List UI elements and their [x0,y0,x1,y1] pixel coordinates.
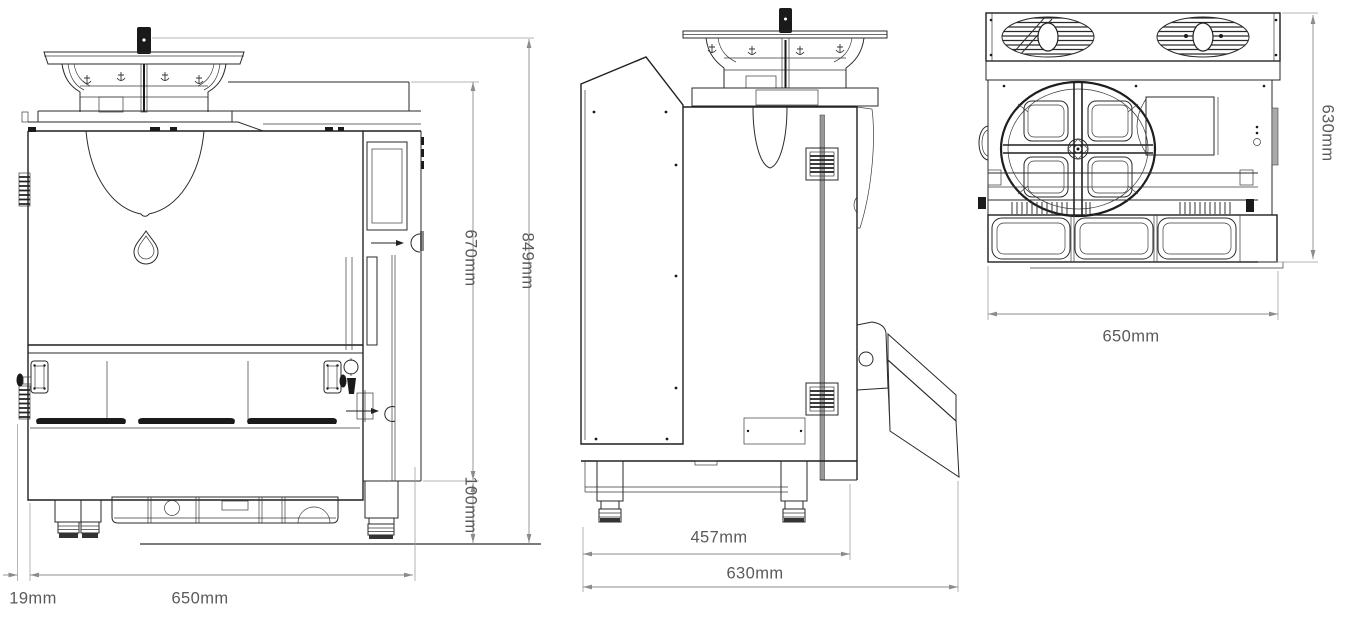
dim-front-leg-height-label: 100mm [461,476,480,533]
dough-tray-lips [30,418,360,428]
anchor-icon [708,44,844,55]
rating-plate [744,418,805,444]
side-view [581,8,959,592]
back-panel [581,57,683,444]
top-view [978,13,1318,320]
table-deck [22,82,421,132]
door-handle [411,234,420,252]
divider-deck [979,80,1278,216]
machine-body-front [28,131,363,523]
hopper-side [683,8,887,106]
droplet-icon [134,231,158,264]
dim-front-left-offset-label: 19mm [9,590,56,609]
discharge-chute [857,322,959,477]
dim-front-width-label: 650mm [171,590,228,609]
dim-front-upper-height-label: 670mm [461,229,480,286]
dim-side-total-depth-label: 630mm [726,565,783,584]
technical-drawing-canvas: 670mm 849mm 100mm 19mm 650mm 457mm 630mm… [0,0,1345,617]
touch-screen [367,142,407,230]
dim-top-depth-label: 630mm [1318,104,1337,161]
hopper-assembly [44,27,244,112]
divider-head [1001,82,1155,216]
base-strip [112,497,338,523]
front-latches [17,358,359,394]
control-panel [346,131,424,481]
dim-top-width-label: 650mm [1102,328,1159,347]
dim-side-body-depth-label: 457mm [690,529,747,548]
fan-icon [1156,17,1250,57]
machine-body-side [581,107,959,522]
side-feet [585,461,807,522]
fan-box [986,13,1280,80]
arrow-right-icon [371,240,404,246]
fan-icon [1001,16,1095,57]
machine-orthographic-views [0,0,1345,617]
dim-front-total-height-label: 849mm [518,232,537,289]
tray-rack [988,215,1283,268]
deck-pocket [1146,97,1214,155]
